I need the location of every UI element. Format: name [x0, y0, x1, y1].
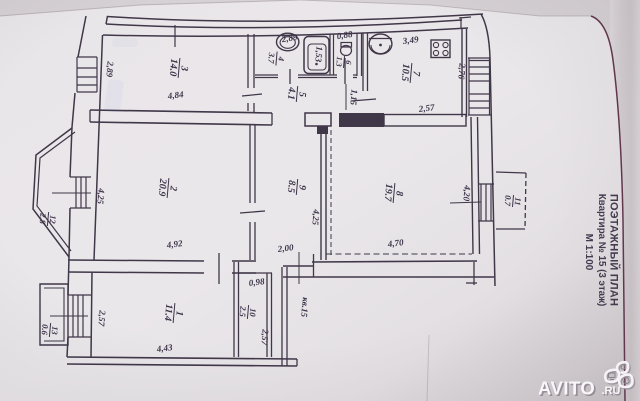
- svg-text:AVITO: AVITO: [538, 378, 595, 399]
- svg-text:.RU: .RU: [602, 385, 621, 397]
